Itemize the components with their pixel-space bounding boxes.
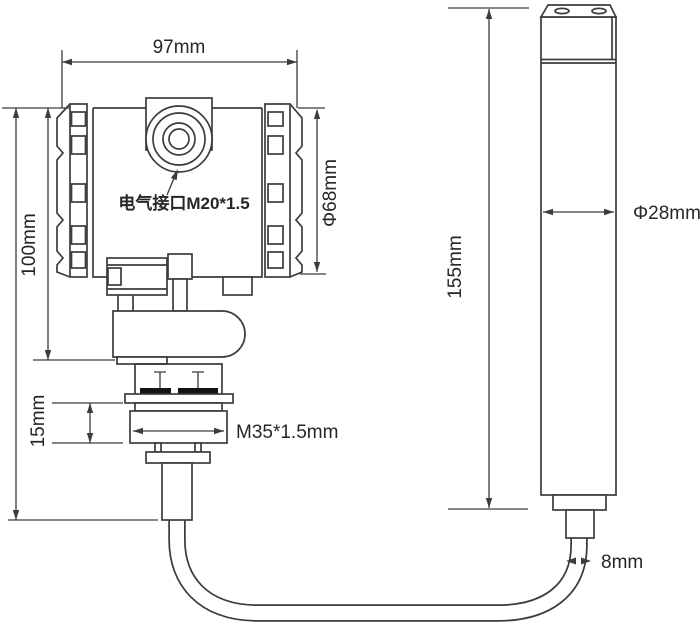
probe-body	[541, 17, 616, 495]
dim-label-15mm: 15mm	[28, 395, 49, 448]
housing-body	[93, 98, 262, 277]
port-ring-inner	[169, 129, 189, 149]
washer-left	[140, 388, 171, 394]
oval-lip	[117, 357, 167, 364]
dim-body-height: 100mm	[19, 108, 115, 360]
transmitter-stem	[146, 443, 210, 520]
dim-label-28mm: Φ28mm	[633, 203, 700, 224]
left-end-cap	[57, 104, 87, 277]
thread-block	[130, 411, 227, 443]
dim-probe-height: 155mm	[445, 8, 529, 509]
flange-neck	[135, 403, 222, 411]
probe-cable-gland	[566, 510, 594, 538]
cable	[177, 514, 579, 613]
collar	[146, 452, 210, 463]
probe-top-hole-right	[592, 8, 606, 13]
dim-flange-height: 15mm	[28, 395, 123, 448]
dim-label-97mm: 97mm	[153, 37, 206, 58]
dim-label-155mm: 155mm	[445, 235, 466, 298]
drawing-canvas: 97mm 100mm Φ68mm 15mm M35*1.5mm	[0, 0, 700, 629]
dim-label-68mm: Φ68mm	[320, 159, 341, 227]
dimension-drawing-svg: 97mm 100mm Φ68mm 15mm M35*1.5mm	[0, 0, 700, 629]
right-end-cap	[265, 104, 302, 277]
dim-label-m35: M35*1.5mm	[236, 422, 338, 443]
probe-top-hole-left	[555, 8, 569, 13]
flange-plate	[125, 394, 233, 403]
oval-connection-body	[113, 311, 245, 357]
label-electrical-port: 电气接口M20*1.5	[118, 193, 249, 213]
down-tube	[162, 463, 192, 520]
electrical-port-label: 电气接口M20*1.5	[118, 169, 249, 213]
dim-label-8mm: 8mm	[601, 552, 643, 573]
washer-right	[178, 388, 218, 394]
dim-label-100mm: 100mm	[19, 213, 40, 276]
hex-fitting	[135, 364, 222, 394]
terminal-bracket	[107, 254, 252, 311]
transmitter-drawing	[57, 98, 302, 443]
dim-body-diameter: Φ68mm	[300, 109, 341, 274]
probe-step	[553, 495, 606, 510]
probe-drawing	[541, 5, 616, 538]
